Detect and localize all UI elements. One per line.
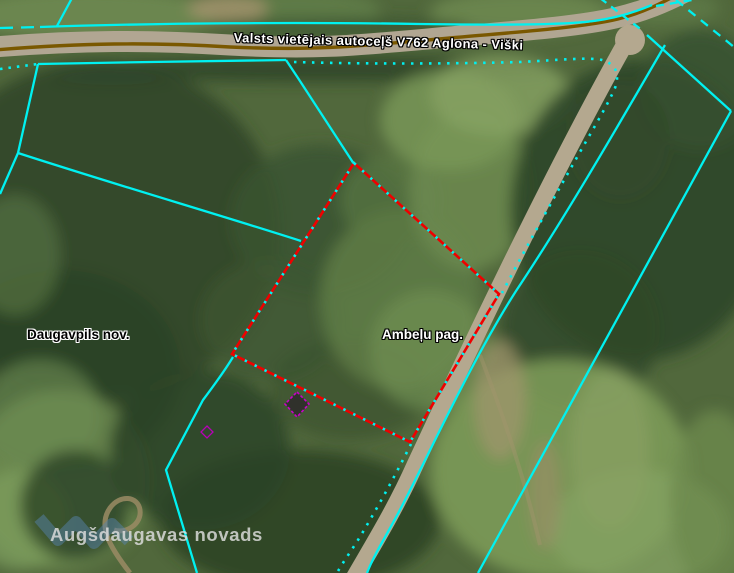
road-junction [615, 25, 645, 55]
map-viewport[interactable]: Valsts vietējais autoceļš V762 Aglona - … [0, 0, 734, 573]
map-canvas [0, 0, 734, 573]
